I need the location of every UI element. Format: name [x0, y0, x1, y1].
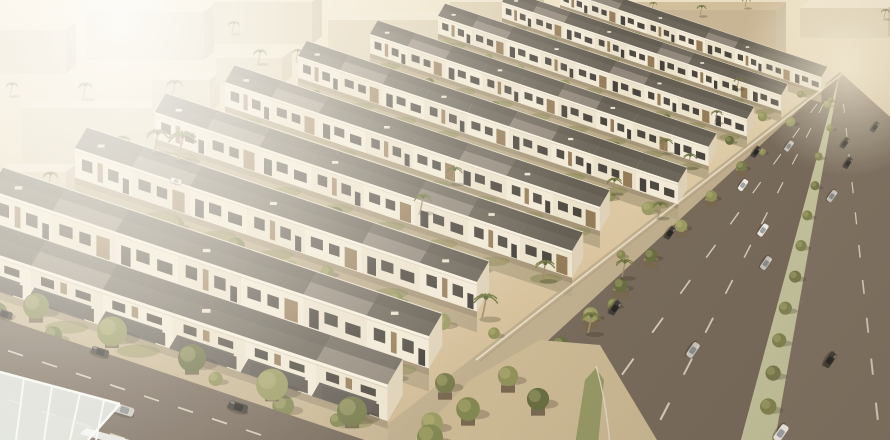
aerial-villa-community-render	[0, 0, 890, 440]
render-canvas	[0, 0, 890, 440]
corner-shade	[0, 0, 890, 440]
sun-haze	[0, 0, 890, 440]
